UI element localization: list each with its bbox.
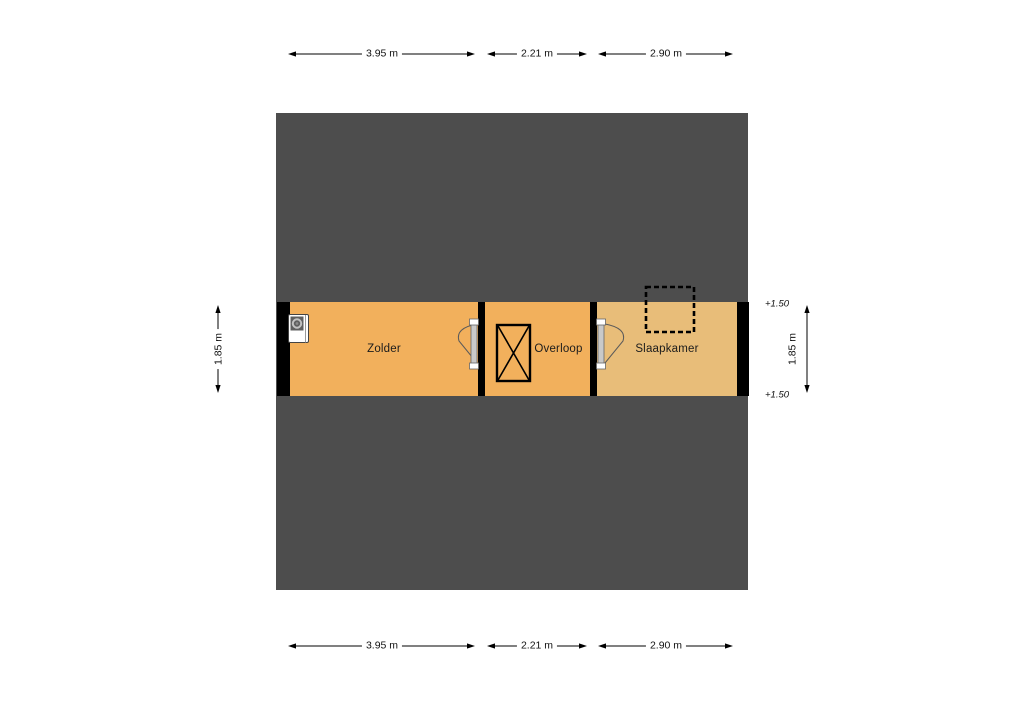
wall-left — [277, 302, 290, 396]
room-overloop: Overloop — [485, 302, 590, 396]
wall-overloop-slaapkamer — [590, 302, 597, 396]
dim-label-bottom-1: 3.95 m — [362, 640, 402, 653]
level-marker-bottom: +1.50 — [765, 390, 789, 401]
room-zolder: Zolder — [290, 302, 478, 396]
dimension-right — [804, 305, 809, 393]
room-label-slaapkamer: Slaapkamer — [635, 343, 698, 355]
dim-label-right: 1.85 m — [787, 329, 800, 369]
room-label-overloop: Overloop — [534, 343, 582, 355]
dim-label-bottom-2: 2.21 m — [517, 640, 557, 653]
floorplan-canvas: Zolder Overloop Slaapkamer — [0, 0, 1024, 702]
dim-label-top-2: 2.21 m — [517, 48, 557, 61]
dim-label-bottom-3: 2.90 m — [646, 640, 686, 653]
wall-right — [737, 302, 749, 396]
wall-zolder-overloop — [478, 302, 485, 396]
level-marker-top: +1.50 — [765, 299, 789, 310]
dim-label-top-3: 2.90 m — [646, 48, 686, 61]
room-slaapkamer: Slaapkamer — [597, 302, 737, 396]
dim-label-left: 1.85 m — [213, 329, 226, 369]
room-label-zolder: Zolder — [367, 343, 401, 355]
dim-label-top-1: 3.95 m — [362, 48, 402, 61]
